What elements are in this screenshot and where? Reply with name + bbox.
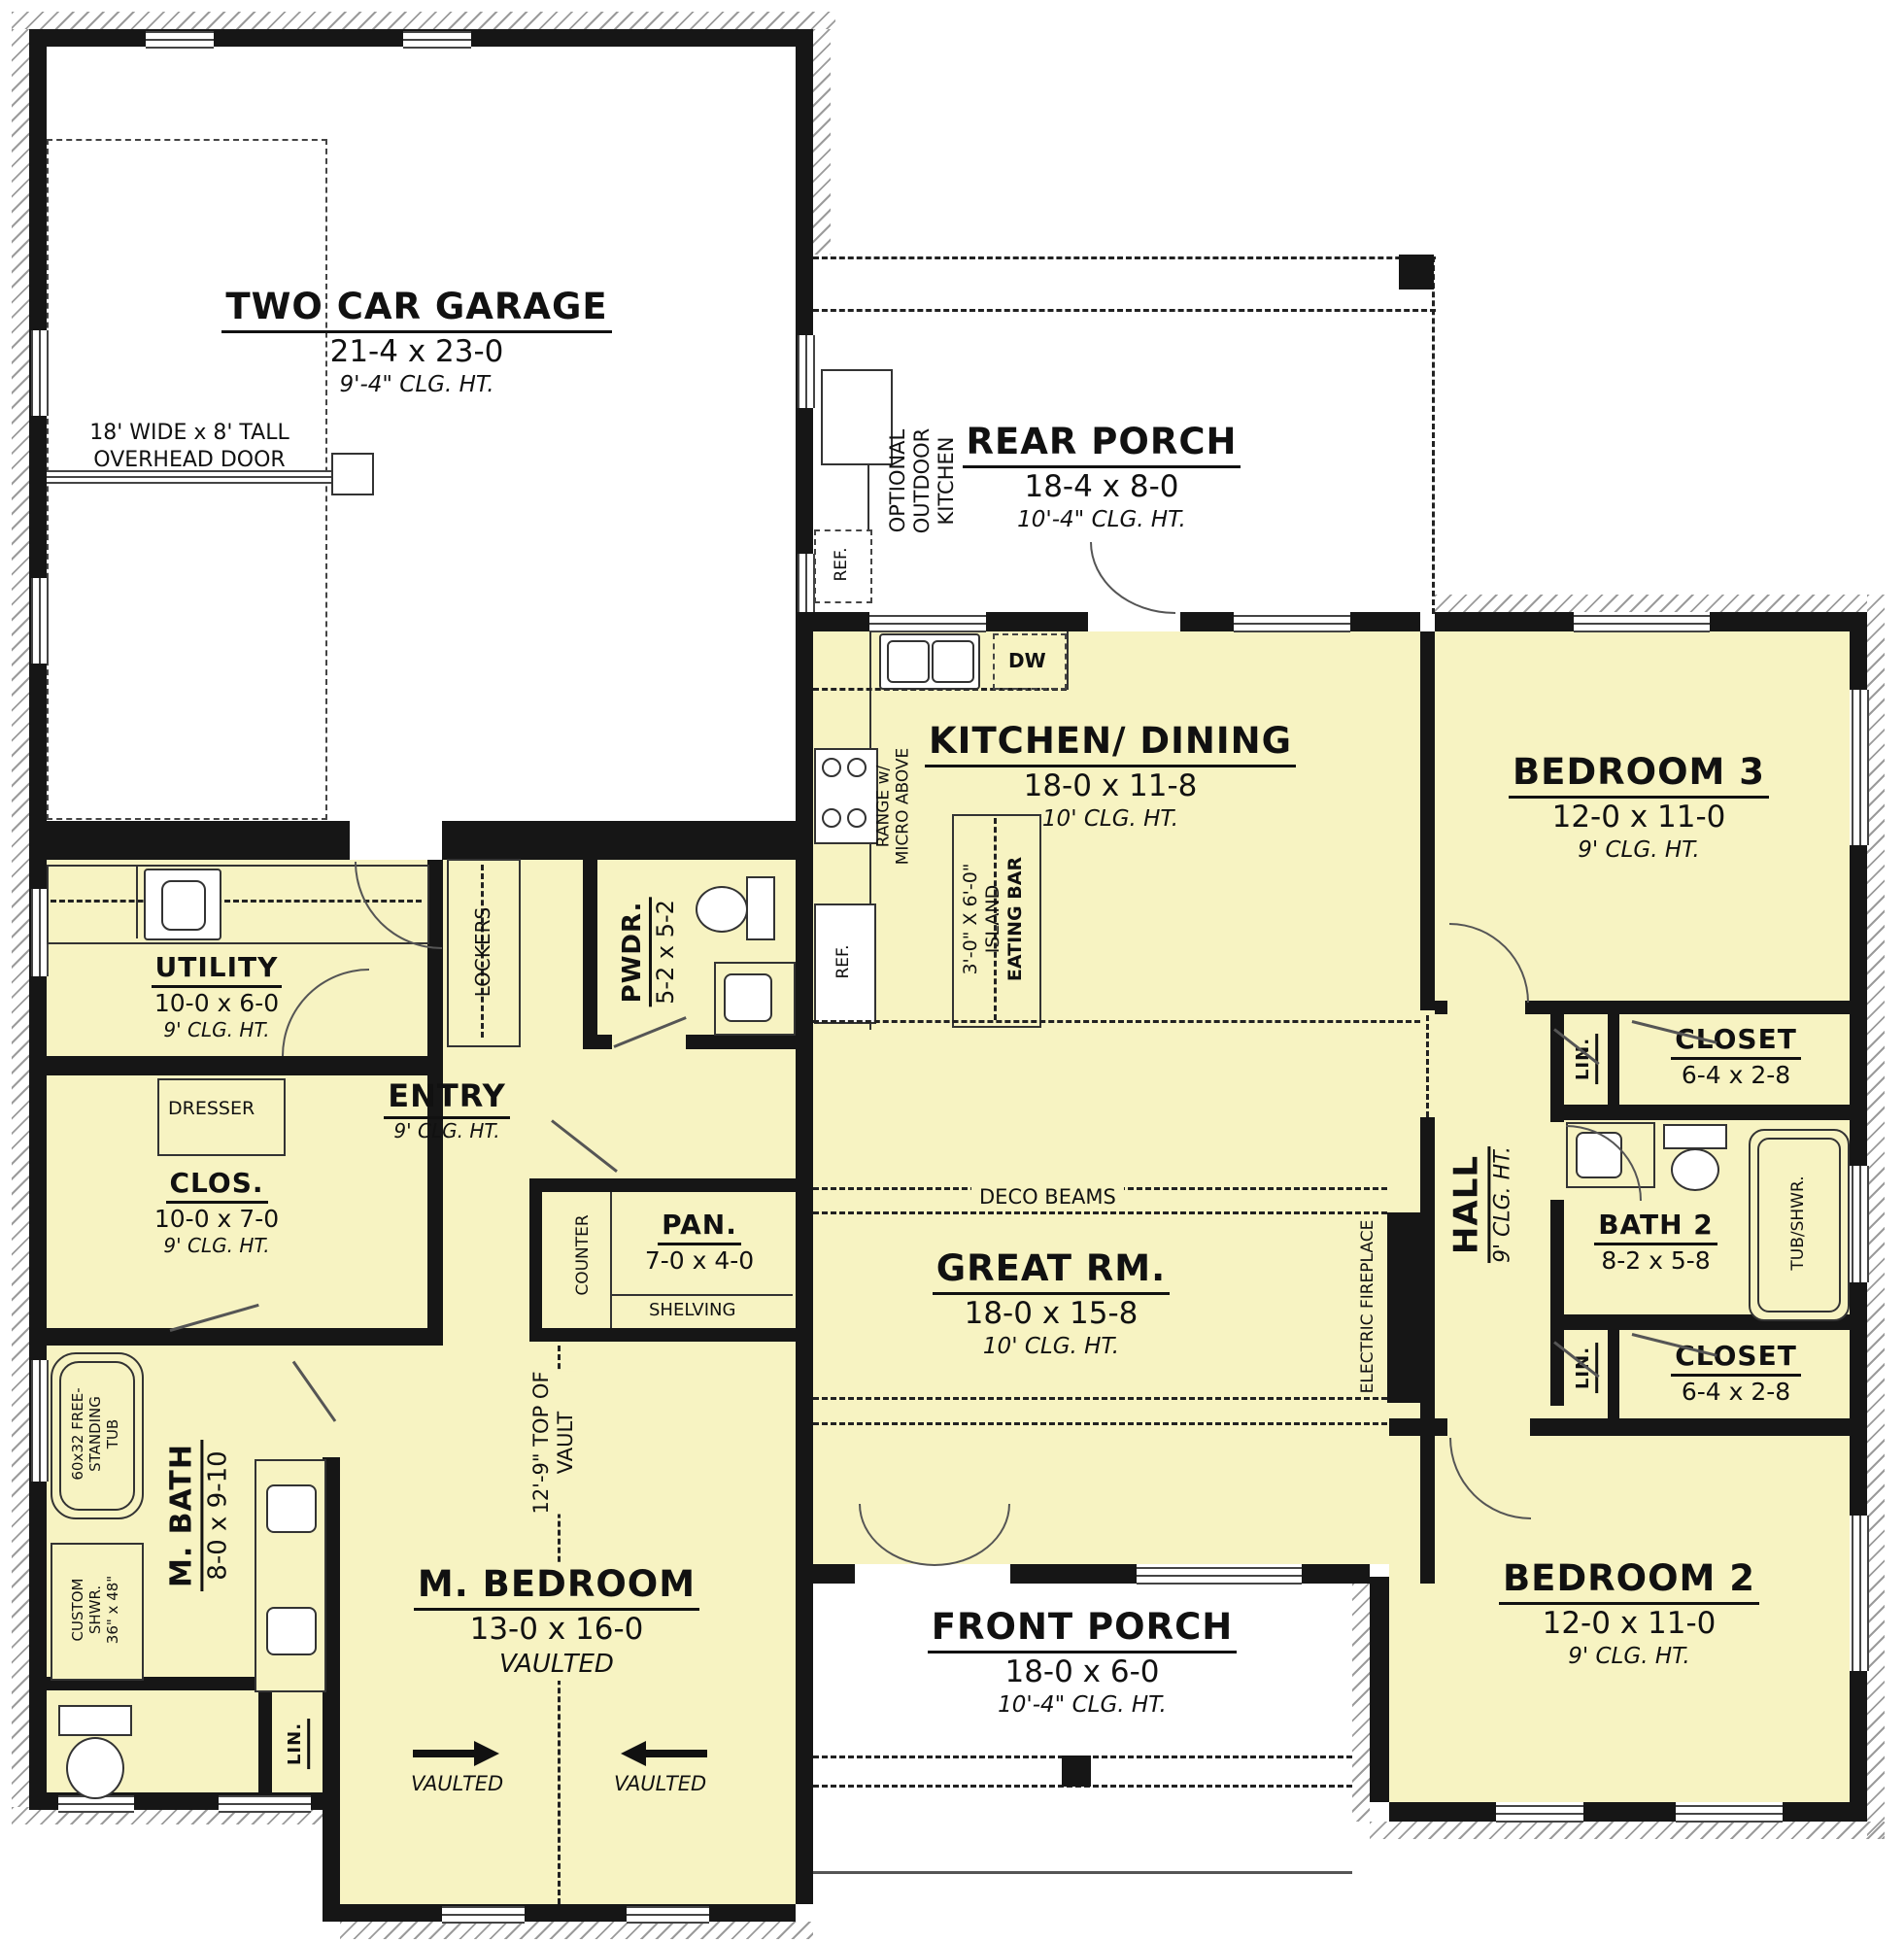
hatch-bed2-bottom: [1370, 1822, 1885, 1839]
pan-name: PAN.: [658, 1208, 741, 1245]
wall: [29, 821, 350, 860]
closet-bot-name: CLOSET: [1671, 1339, 1801, 1377]
wall: [1420, 1117, 1435, 1584]
mbed-floor: [340, 1810, 796, 1904]
wall: [1710, 612, 1867, 631]
wall: [1850, 1671, 1867, 1802]
wall: [1550, 1200, 1564, 1406]
lockers-label: LOCKERS: [471, 907, 494, 997]
deco-beams-text: DECO BEAMS: [979, 1185, 1116, 1209]
rear-porch-label: REAR PORCH 18-4 x 8-0 10'-4" CLG. HT.: [907, 420, 1296, 534]
bath2-toilet-tank: [1663, 1124, 1727, 1149]
mbath-vanity: [255, 1459, 326, 1692]
closet-bot-dims: 6-4 x 2-8: [1682, 1377, 1790, 1407]
bedroom2-label: BEDROOM 2 12-0 x 11-0 9' CLG. HT.: [1435, 1556, 1823, 1671]
custom-shwr-label: CUSTOM SHWR. 36" x 48": [69, 1576, 121, 1644]
utility-dims: 10-0 x 6-0: [154, 988, 279, 1018]
kitchen-ref-label: REF.: [833, 944, 853, 978]
mbed-name: M. BEDROOM: [414, 1562, 699, 1611]
deco-beam: [813, 1397, 1387, 1400]
shwr-line1: CUSTOM: [69, 1576, 86, 1644]
pwdr-toilet-tank: [746, 876, 775, 940]
front-porch-clg: 10'-4" CLG. HT.: [998, 1691, 1167, 1720]
bedroom3-clg: 9' CLG. HT.: [1578, 836, 1700, 865]
island-line2: ISLAND: [982, 857, 1004, 981]
wall: [340, 1904, 796, 1922]
rear-porch-edge: [813, 309, 1436, 312]
fireplace-text: ELECTRIC FIREPLACE: [1358, 1220, 1377, 1394]
range-label: RANGE w/ MICRO ABOVE: [874, 748, 914, 866]
wall: [1435, 1001, 1447, 1014]
wall: [1608, 1328, 1619, 1419]
pwdr-vanity: [714, 962, 796, 1036]
wall: [1850, 845, 1867, 1166]
shwr-line3: 36" x 48": [104, 1576, 121, 1644]
bedroom2-dims: 12-0 x 11-0: [1543, 1605, 1717, 1643]
pwdr-name: PWDR.: [618, 898, 652, 1007]
wall: [29, 29, 47, 824]
utility-divider: [136, 867, 138, 938]
bedroom3-dims: 12-0 x 11-0: [1552, 799, 1726, 836]
kitchen-sink: [879, 633, 980, 690]
clos-name: CLOS.: [166, 1166, 268, 1204]
clos-dims: 10-0 x 7-0: [154, 1204, 279, 1234]
kitchen-clg: 10' CLG. HT.: [1042, 805, 1178, 834]
wall: [1783, 1802, 1867, 1822]
garage-dims: 21-4 x 23-0: [330, 333, 504, 371]
vault-line1: 12'-9" TOP OF: [529, 1371, 554, 1514]
wall: [1564, 1105, 1850, 1120]
hatch-porch-right: [1352, 1584, 1370, 1822]
wall: [1010, 1564, 1137, 1584]
mbed-note: VAULTED: [499, 1649, 614, 1681]
window: [31, 1360, 49, 1482]
window: [1852, 1166, 1869, 1282]
wall: [1389, 1418, 1447, 1436]
great-clg: 10' CLG. HT.: [983, 1333, 1119, 1361]
rear-porch-name: REAR PORCH: [963, 420, 1241, 468]
closet-bot-label: CLOSET 6-4 x 2-8: [1619, 1339, 1853, 1407]
porch-post: [1062, 1756, 1091, 1787]
bath2-dims: 8-2 x 5-8: [1601, 1245, 1710, 1276]
wall: [29, 1056, 427, 1075]
mbath-name: M. BATH: [164, 1440, 203, 1591]
vaulted-text: VAULTED: [614, 1772, 706, 1795]
bath2-toilet-bowl: [1671, 1148, 1719, 1191]
wall: [1302, 1564, 1370, 1584]
mbath-label: M. BATH 8-0 x 9-10: [164, 1440, 233, 1591]
shelving-line: [612, 1294, 793, 1296]
window: [1234, 615, 1350, 632]
rear-porch-dims: 18-4 x 8-0: [1024, 468, 1178, 506]
wall: [1608, 1014, 1619, 1107]
tub-line2: STANDING: [86, 1387, 104, 1480]
burner: [847, 758, 867, 777]
window: [1137, 1567, 1302, 1585]
floor-plan: 18' WIDE x 8' TALL OVERHEAD DOOR TWO CAR…: [0, 0, 1904, 1943]
vaulted-text: VAULTED: [411, 1772, 503, 1795]
wall: [583, 860, 597, 1035]
window: [1676, 1805, 1783, 1823]
overhead-door-label: 18' WIDE x 8' TALL OVERHEAD DOOR: [68, 420, 311, 473]
hatch-left: [12, 29, 29, 1807]
mbath-sink: [266, 1484, 317, 1533]
shelving-text: SHELVING: [649, 1300, 735, 1320]
vault-label: 12'-9" TOP OF VAULT: [529, 1371, 578, 1514]
window: [1496, 1805, 1583, 1823]
window: [442, 1906, 525, 1924]
great-name: GREAT RM.: [933, 1246, 1170, 1295]
kitchen-name: KITCHEN/ DINING: [925, 719, 1296, 767]
vault-line2: VAULT: [554, 1371, 578, 1514]
overhead-door-opener: [331, 453, 374, 495]
ref-text: REF.: [832, 547, 851, 581]
kitchen-dims: 18-0 x 11-8: [1024, 767, 1198, 805]
kitchen-label: KITCHEN/ DINING 18-0 x 11-8 10' CLG. HT.: [916, 719, 1305, 834]
great-label: GREAT RM. 18-0 x 15-8 10' CLG. HT.: [857, 1246, 1245, 1361]
wall: [1525, 1001, 1850, 1014]
overhead-door-line1: 18' WIDE x 8' TALL: [89, 420, 289, 447]
sink-basin: [887, 640, 930, 683]
window: [627, 1906, 709, 1924]
pan-dims: 7-0 x 4-0: [645, 1245, 754, 1276]
window: [1852, 1516, 1869, 1671]
outdoor-grill: [821, 369, 893, 465]
hatch-right: [1867, 595, 1885, 1839]
bedroom3-name: BEDROOM 3: [1509, 750, 1769, 799]
garage-clg: 9'-4" CLG. HT.: [339, 371, 493, 399]
lin3-label: LIN.: [285, 1719, 310, 1769]
clos-clg: 9' CLG. HT.: [163, 1234, 269, 1258]
pwdr-label: PWDR. 5-2 x 5-2: [618, 898, 680, 1007]
outdoor-counter-line: [867, 463, 869, 531]
ref-text: REF.: [833, 944, 853, 978]
wall: [686, 1035, 796, 1049]
free-tub-label: 60x32 FREE- STANDING TUB: [69, 1387, 121, 1480]
counter-text: COUNTER: [573, 1214, 593, 1295]
closet-top-name: CLOSET: [1671, 1022, 1801, 1060]
shelving-label: SHELVING: [649, 1300, 735, 1320]
deco-beam: [813, 1422, 1387, 1425]
shwr-line2: SHWR.: [86, 1576, 104, 1644]
front-porch-name: FRONT PORCH: [928, 1605, 1238, 1653]
garage-label: TWO CAR GARAGE 21-4 x 23-0 9'-4" CLG. HT…: [222, 285, 611, 399]
overhead-door-line2: OVERHEAD DOOR: [93, 447, 285, 474]
range: [814, 748, 878, 844]
wall: [796, 1564, 813, 1904]
garage-name: TWO CAR GARAGE: [221, 285, 611, 333]
wall: [529, 1178, 796, 1192]
deco-beams-label: DECO BEAMS: [971, 1185, 1124, 1209]
wall: [986, 612, 1088, 631]
island-label: 3'-0" X 6'-0" ISLAND EATING BAR: [960, 857, 1026, 981]
tub-line3: TUB: [104, 1387, 121, 1480]
mbath-dims: 8-0 x 9-10: [203, 1440, 233, 1591]
wall: [1530, 1418, 1867, 1436]
bath2-label: BATH 2 8-2 x 5-8: [1566, 1208, 1746, 1276]
mbed-dims: 13-0 x 16-0: [470, 1611, 644, 1649]
bedroom2-name: BEDROOM 2: [1499, 1556, 1759, 1605]
wall: [1180, 612, 1234, 631]
burner: [822, 758, 841, 777]
counter-edge: [1067, 631, 1069, 690]
front-porch-label: FRONT PORCH 18-0 x 6-0 10'-4" CLG. HT.: [888, 1605, 1276, 1720]
vaulted-arrow-right: [413, 1750, 491, 1757]
deco-beam: [813, 1211, 1387, 1214]
window: [869, 615, 986, 632]
wall: [1420, 631, 1435, 1010]
window: [1852, 690, 1869, 845]
utility-name: UTILITY: [152, 950, 283, 988]
hatch-bed3-top: [1435, 595, 1867, 612]
wall: [529, 1178, 542, 1342]
range-line2: MICRO ABOVE: [894, 748, 913, 866]
window: [1574, 615, 1710, 632]
fireplace-label: ELECTRIC FIREPLACE: [1358, 1220, 1377, 1394]
lockers-text: LOCKERS: [471, 907, 494, 997]
window: [146, 31, 214, 49]
fireplace: [1387, 1212, 1420, 1403]
utility-clg: 9' CLG. HT.: [163, 1018, 269, 1042]
pan-counter-label: COUNTER: [573, 1214, 593, 1295]
wall: [796, 29, 813, 617]
wall: [813, 612, 869, 631]
wall: [1389, 1802, 1496, 1822]
dresser-label: DRESSER: [168, 1098, 255, 1119]
wall: [813, 1564, 855, 1584]
bedroom2-clg: 9' CLG. HT.: [1568, 1643, 1690, 1671]
wall: [29, 1328, 443, 1346]
wall: [796, 617, 813, 1564]
pwdr-sink: [724, 973, 772, 1022]
vaulted-arrow-left: [629, 1750, 707, 1757]
kitchen-great-divider: [813, 1020, 1420, 1023]
rear-porch-edge: [813, 256, 1436, 259]
bath2-name: BATH 2: [1594, 1208, 1717, 1245]
island-line3: EATING BAR: [1003, 857, 1026, 981]
tub-shwr-label: TUB/SHWR.: [1788, 1176, 1808, 1270]
wall: [1583, 1802, 1676, 1822]
island-line1: 3'-0" X 6'-0": [960, 857, 982, 981]
closet-top-label: CLOSET 6-4 x 2-8: [1619, 1022, 1853, 1090]
window: [798, 554, 815, 612]
wall: [442, 821, 796, 860]
dw-text: DW: [1008, 649, 1046, 672]
wc-toilet-bowl: [66, 1737, 124, 1799]
entry-clg: 9' CLG. HT.: [393, 1119, 499, 1143]
window: [219, 1795, 311, 1813]
burner: [847, 808, 867, 828]
hatch-garage-right: [813, 29, 831, 255]
wall: [583, 1035, 612, 1049]
pan-counter-line: [610, 1192, 612, 1328]
pan-label: PAN. 7-0 x 4-0: [622, 1208, 777, 1276]
hall-clg: 9' CLG. HT.: [1490, 1146, 1515, 1263]
hall-label: HALL 9' CLG. HT.: [1446, 1146, 1515, 1263]
rear-porch-edge: [1432, 256, 1435, 614]
wall: [529, 1328, 796, 1342]
closet-top-dims: 6-4 x 2-8: [1682, 1060, 1790, 1090]
dw-label: DW: [1008, 649, 1046, 672]
front-porch-dims: 18-0 x 6-0: [1004, 1653, 1159, 1691]
wall: [1850, 631, 1867, 690]
vaulted-label: VAULTED: [411, 1772, 503, 1795]
outdoor-ref-label: REF.: [832, 547, 851, 581]
wall: [1435, 612, 1574, 631]
dresser-text: DRESSER: [168, 1098, 255, 1119]
window: [798, 335, 815, 408]
tub-shwr-text: TUB/SHWR.: [1788, 1176, 1808, 1270]
hall-name: HALL: [1446, 1146, 1490, 1263]
hall-opening-dash: [1426, 1015, 1429, 1117]
washer-drum: [161, 880, 206, 931]
mbed-label: M. BEDROOM 13-0 x 16-0 VAULTED: [362, 1562, 751, 1681]
entry-label: ENTRY 9' CLG. HT.: [350, 1076, 544, 1143]
wall: [1370, 1577, 1389, 1802]
wall: [1350, 612, 1420, 631]
pwdr-toilet-bowl: [696, 886, 748, 933]
entry-name: ENTRY: [384, 1076, 510, 1119]
burner: [822, 808, 841, 828]
tub-line1: 60x32 FREE-: [69, 1387, 86, 1480]
rear-porch-clg: 10'-4" CLG. HT.: [1017, 506, 1186, 534]
mbath-sink: [266, 1607, 317, 1655]
range-line1: RANGE w/: [874, 748, 894, 866]
pwdr-dims: 5-2 x 5-2: [652, 898, 680, 1007]
bedroom3-label: BEDROOM 3 12-0 x 11-0 9' CLG. HT.: [1445, 750, 1833, 865]
lin-text: LIN.: [285, 1719, 310, 1769]
porch-post: [1399, 255, 1434, 290]
window: [403, 31, 471, 49]
vaulted-label: VAULTED: [614, 1772, 706, 1795]
hatch-top: [12, 12, 835, 29]
great-dims: 18-0 x 15-8: [965, 1295, 1139, 1333]
hatch-mbed-bottom: [340, 1922, 813, 1939]
sink-basin: [932, 640, 974, 683]
clos-label: CLOS. 10-0 x 7-0 9' CLG. HT.: [71, 1166, 362, 1258]
washer: [144, 869, 221, 940]
wc-toilet-tank: [58, 1705, 132, 1736]
wall: [258, 1690, 272, 1797]
porch-step-line: [813, 1871, 1352, 1874]
